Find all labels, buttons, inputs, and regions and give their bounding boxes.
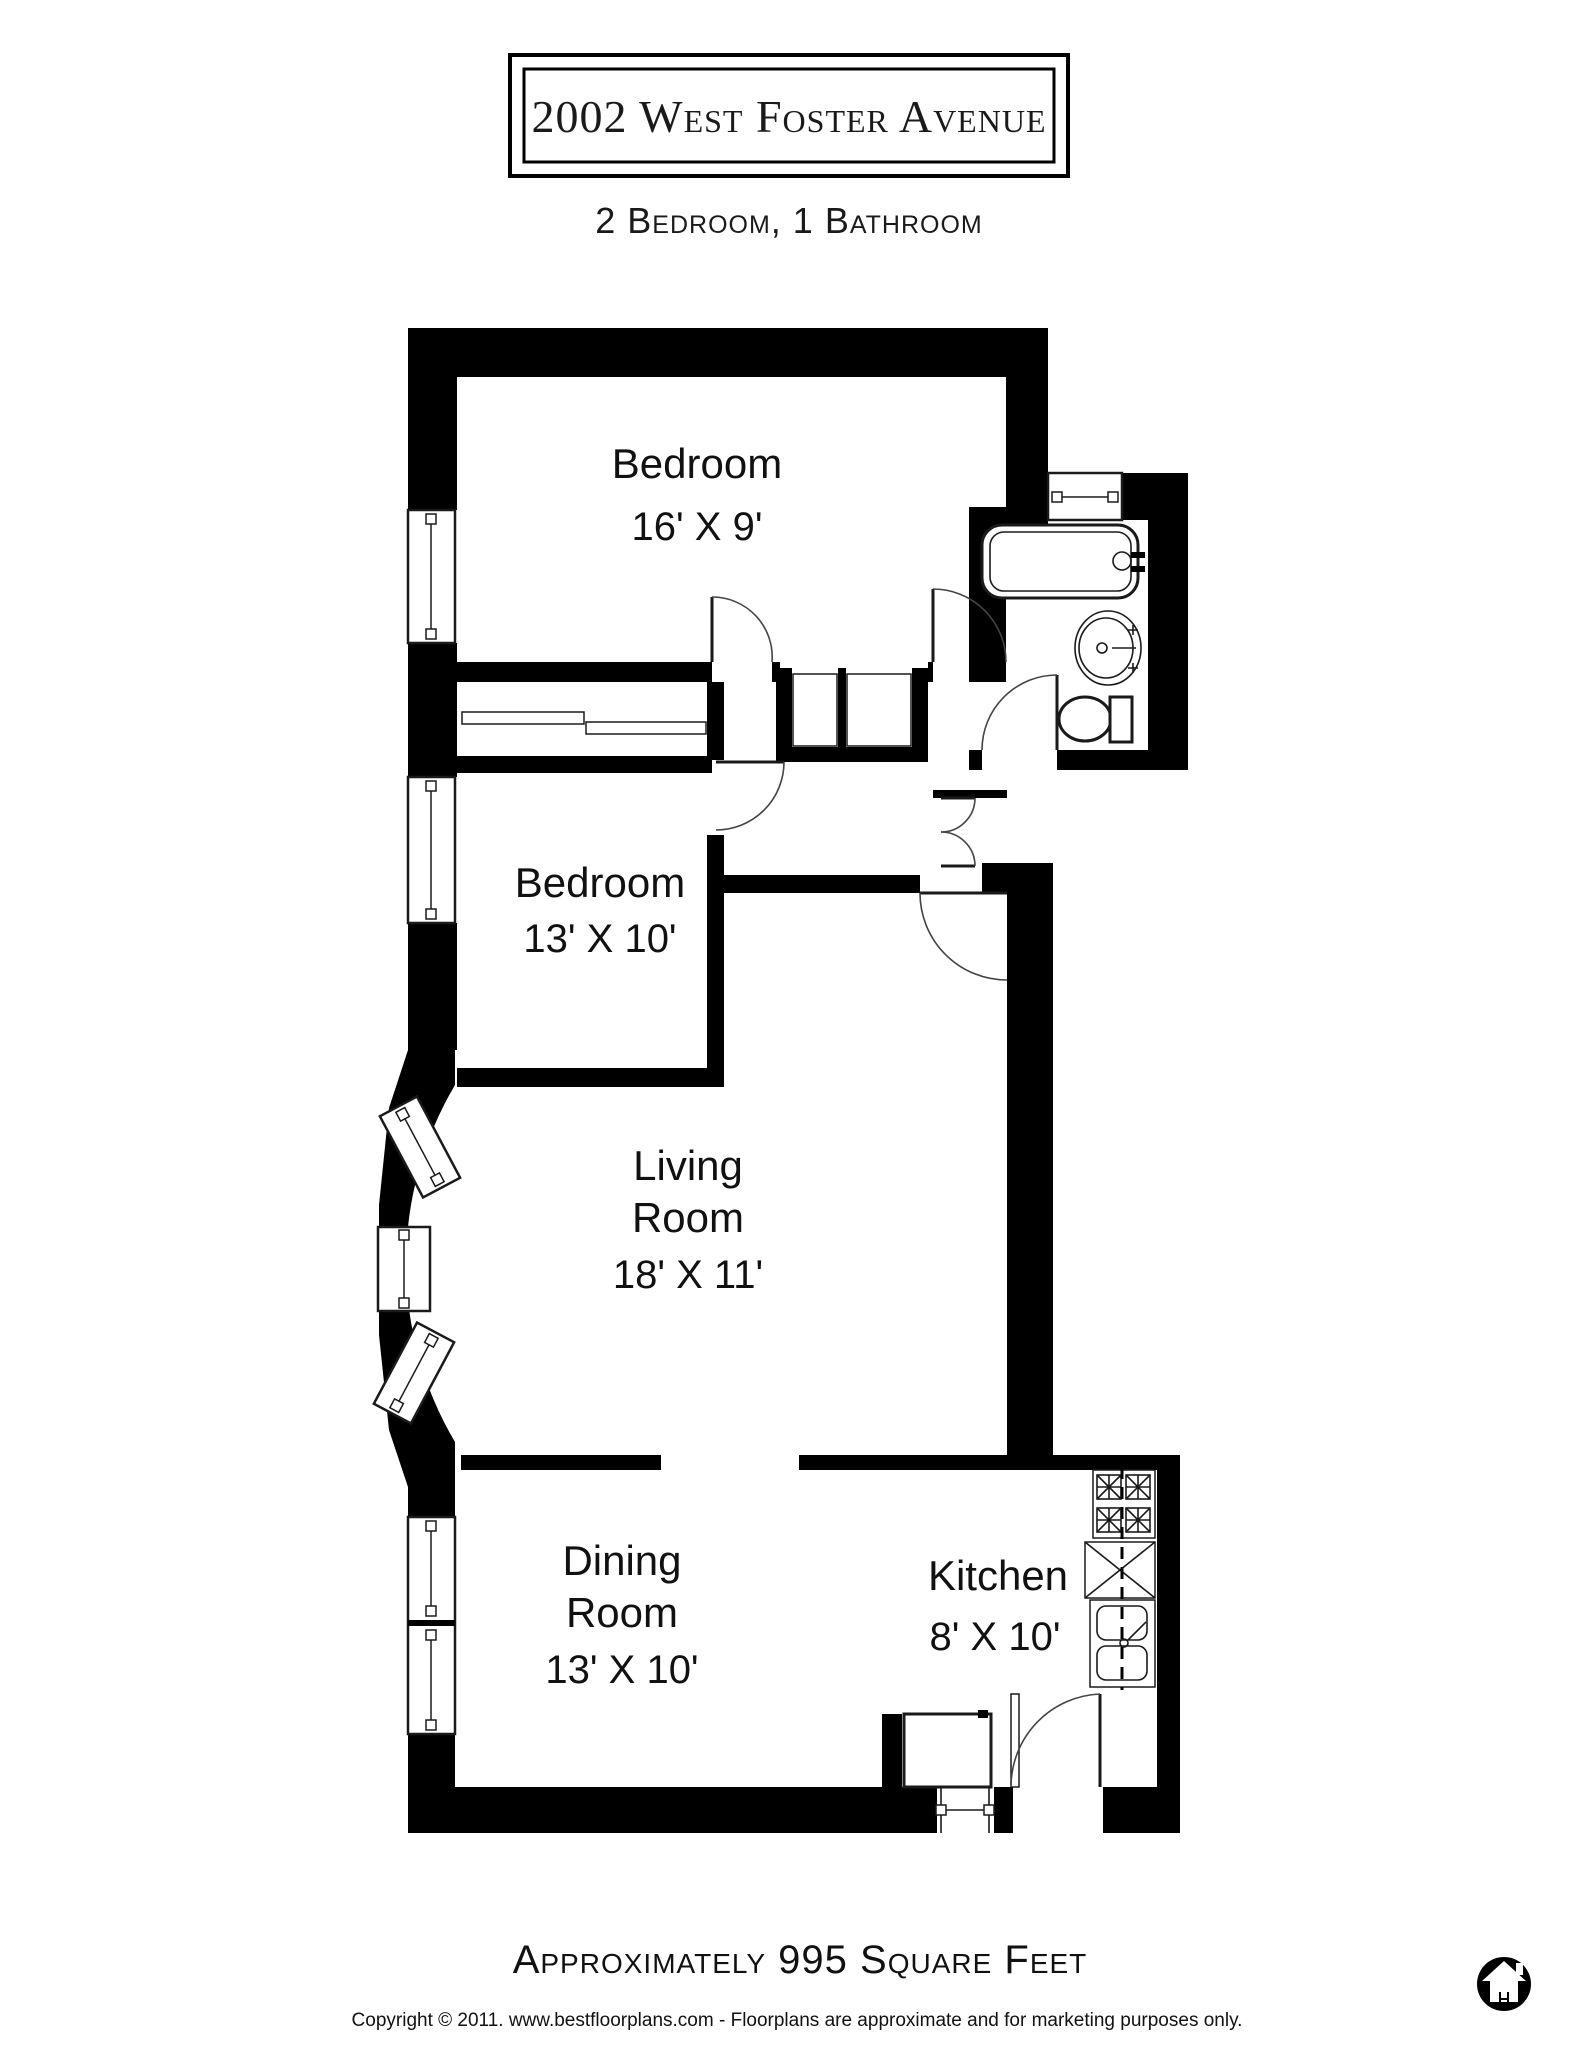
dining-window-icon	[408, 1517, 455, 1734]
svg-text:Room: Room	[632, 1194, 744, 1241]
bedroom1-door-icon	[712, 597, 772, 662]
svg-text:13' X 10': 13' X 10'	[523, 917, 676, 961]
copyright-line: Copyright © 2011. www.bestfloorplans.com…	[352, 2010, 1243, 2031]
window-icon	[408, 510, 455, 643]
bedroom2-door-icon	[716, 762, 784, 830]
svg-text:Bedroom: Bedroom	[612, 440, 782, 487]
exterior-steps-icon	[936, 1787, 994, 1833]
svg-text:16' X 9': 16' X 9'	[632, 505, 763, 549]
room-label-bedroom-1: Bedroom 16' X 9'	[612, 440, 782, 549]
room-label-kitchen: Kitchen 8' X 10'	[928, 1552, 1068, 1659]
bathroom-fixtures	[982, 525, 1145, 742]
stove-icon	[1093, 1470, 1155, 1538]
kitchen-fixtures	[1085, 1467, 1155, 1690]
page-subtitle: 2 Bedroom, 1 Bathroom	[595, 200, 983, 241]
svg-text:Bedroom: Bedroom	[515, 859, 685, 906]
sliding-closet-doors-icon	[462, 712, 706, 734]
bathtub-icon	[982, 525, 1145, 598]
window-icon	[408, 777, 455, 923]
floorplan-canvas: 2002 West Foster Avenue 2 Bedroom, 1 Bat…	[0, 0, 1583, 2048]
living-room-door-icon	[920, 893, 1007, 980]
bathroom-sink-icon	[1075, 611, 1141, 685]
stoop-landing	[904, 1714, 991, 1787]
counter-dishwasher-icon	[1085, 1542, 1155, 1598]
hall-closet-icon	[793, 674, 911, 746]
room-label-living-room: Living Room 18' X 11'	[613, 1142, 763, 1297]
page-title: 2002 West Foster Avenue	[531, 91, 1046, 142]
svg-text:13' X 10': 13' X 10'	[545, 1648, 698, 1692]
area-summary: Approximately 995 Square Feet	[513, 1938, 1088, 1982]
bathroom-window-icon	[1048, 473, 1122, 520]
room-label-bedroom-2: Bedroom 13' X 10'	[515, 859, 685, 961]
svg-text:18' X 11': 18' X 11'	[613, 1253, 763, 1297]
svg-text:Dining: Dining	[562, 1537, 681, 1584]
svg-text:8' X 10': 8' X 10'	[930, 1615, 1061, 1659]
svg-text:Living: Living	[633, 1142, 743, 1189]
kitchen-door-icon	[1011, 1694, 1100, 1787]
svg-text:Kitchen: Kitchen	[928, 1552, 1068, 1599]
bathroom-door-icon	[982, 675, 1057, 750]
linen-closet-doors-icon	[941, 798, 975, 866]
room-label-dining-room: Dining Room 13' X 10'	[545, 1537, 698, 1692]
svg-text:Room: Room	[566, 1589, 678, 1636]
house-in-circle-icon	[1477, 1957, 1531, 2011]
floorplan-page: 2002 West Foster Avenue 2 Bedroom, 1 Bat…	[0, 0, 1583, 2048]
toilet-icon	[1059, 697, 1132, 742]
title-box: 2002 West Foster Avenue	[510, 55, 1068, 176]
bay-window-middle-icon	[378, 1227, 430, 1311]
